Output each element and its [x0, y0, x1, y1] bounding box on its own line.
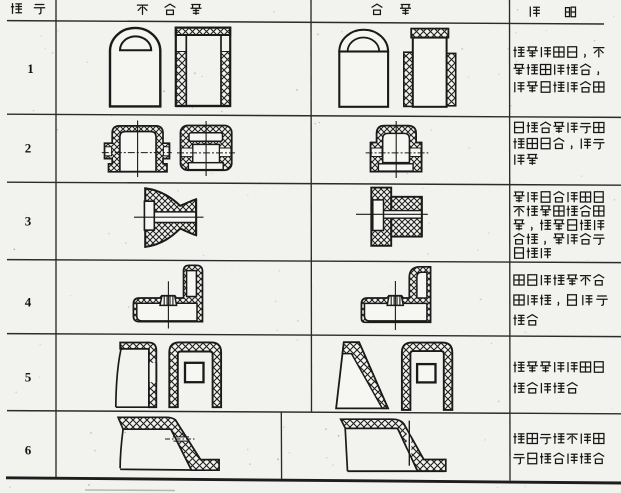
svg-text:1: 1	[27, 61, 34, 76]
svg-text:5: 5	[25, 370, 32, 385]
svg-text:4: 4	[25, 295, 32, 310]
svg-text:6: 6	[25, 443, 32, 458]
svg-text:2: 2	[25, 141, 32, 156]
svg-text:3: 3	[25, 214, 32, 229]
